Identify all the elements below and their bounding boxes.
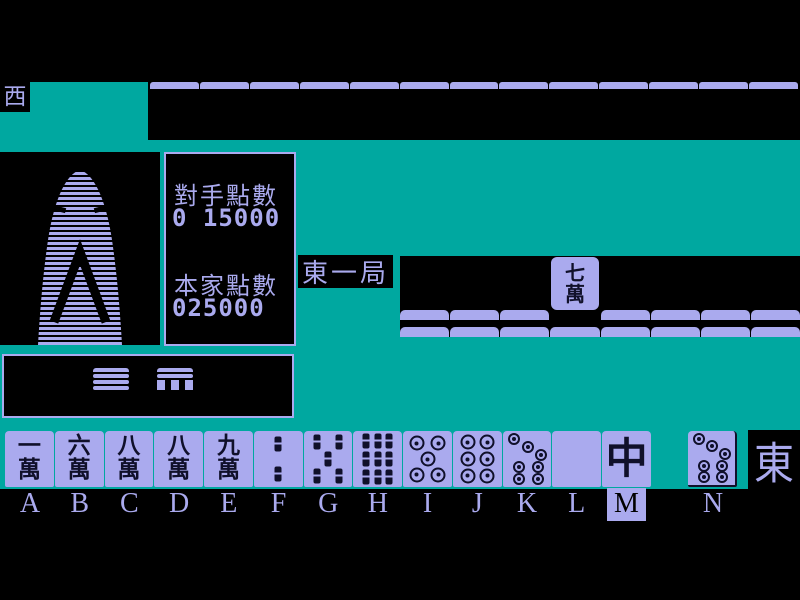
pin-circle (431, 436, 446, 451)
hand-tile-G[interactable] (304, 431, 353, 487)
opponent-hand-row (150, 82, 798, 89)
pin-circle (698, 471, 710, 483)
discard-tile-kanji-top: 七 (565, 263, 585, 284)
tile-kanji-value: 八 (105, 435, 154, 458)
tile-kanji-value: 八 (154, 435, 203, 458)
wall-tile-back (701, 327, 750, 337)
wall-tile-back (400, 310, 449, 320)
bamboo-stick (386, 469, 393, 484)
tile-letter-label: H (362, 490, 394, 518)
player-wind-label: 東 (754, 428, 794, 492)
tile-kanji-honor: 中 (602, 435, 651, 483)
hand-tile-M[interactable]: 中 (602, 431, 651, 487)
pin-circle (431, 467, 446, 482)
opponent-tile-back (599, 82, 648, 89)
pin-circle (716, 471, 728, 483)
tile-kanji-value: 一 (5, 435, 54, 458)
tile-kanji-suit: 萬 (105, 459, 154, 482)
tile-letter-K[interactable]: K (502, 490, 552, 520)
pin-circle (480, 435, 495, 450)
opponent-tile-back (400, 82, 449, 89)
pin-circle (420, 452, 435, 467)
pin-circle (460, 435, 475, 450)
opponent-tile-back (699, 82, 748, 89)
striped-dome-graphic (0, 152, 160, 345)
opponent-tile-back (350, 82, 399, 89)
wall-tile-back (500, 310, 549, 320)
opponent-discard-area: 七 萬 (400, 256, 800, 337)
tile-letter-D[interactable]: D (154, 490, 204, 520)
pin-circle (460, 452, 475, 467)
opponent-tile-back (150, 82, 199, 89)
hand-tile-C[interactable]: 八萬 (105, 431, 154, 487)
wall-tile-back (601, 327, 650, 337)
hand-tile-L[interactable] (552, 431, 601, 487)
tile-letter-label: L (562, 490, 591, 518)
tile-letter-H[interactable]: H (353, 490, 403, 520)
player-wind-indicator: 東 (748, 430, 800, 490)
bamboo-stick (386, 452, 393, 467)
tile-letter-label: G (312, 490, 344, 518)
tile-letter-label: C (114, 490, 145, 518)
wall-tile-back (450, 327, 499, 337)
tile-kanji-value: 九 (204, 435, 253, 458)
hand-tile-F[interactable] (254, 431, 303, 487)
bamboo-stick (363, 434, 370, 449)
opponent-tile-back (450, 82, 499, 89)
tile-letter-label: N (697, 490, 729, 518)
bamboo-stick (363, 452, 370, 467)
wall-tile-back (651, 310, 700, 320)
pin-circle (716, 460, 728, 472)
opponent-score-value: 0 15000 (172, 204, 292, 232)
hand-tile-D[interactable]: 八萬 (154, 431, 203, 487)
pin-circle (513, 473, 525, 485)
bamboo-stick (336, 435, 343, 450)
round-indicator: 東一局 (298, 255, 393, 288)
opponent-hand-area (148, 82, 800, 140)
opponent-tile-back (649, 82, 698, 89)
bamboo-stick (313, 435, 320, 450)
tile-stack-legs-icon (157, 368, 193, 398)
pin-circle (409, 467, 424, 482)
wall-tile-back (400, 327, 449, 337)
round-label: 東一局 (302, 253, 389, 290)
tile-letter-label: E (214, 490, 243, 518)
tile-letter-label: M (607, 488, 646, 521)
pin-circle (719, 448, 731, 460)
wall-stack-panel (2, 354, 294, 418)
opponent-tile-back (300, 82, 349, 89)
bamboo-stick (336, 468, 343, 483)
pin-circle (480, 452, 495, 467)
tile-letter-E[interactable]: E (204, 490, 254, 520)
wall-tile-back (751, 327, 800, 337)
hand-tile-A[interactable]: 一萬 (5, 431, 54, 487)
tile-letter-N[interactable]: N (688, 490, 738, 520)
left-wind-label: 西 (4, 86, 27, 109)
score-panel: 對手點數 0 15000 本家點數 025000 (164, 152, 296, 346)
tile-letter-J[interactable]: J (452, 490, 502, 520)
tower-panel (0, 152, 160, 345)
hand-tile-H[interactable] (353, 431, 402, 487)
opponent-tile-back (549, 82, 598, 89)
tile-letter-label: K (511, 490, 543, 518)
drawn-tile-N[interactable] (688, 431, 737, 487)
pin-circle (522, 441, 534, 453)
pin-circle (508, 433, 520, 445)
opponent-tile-back (749, 82, 798, 89)
discarded-tile-7man: 七 萬 (551, 257, 599, 310)
bamboo-stick (275, 437, 282, 452)
tile-kanji-suit: 萬 (154, 459, 203, 482)
bamboo-stick (374, 452, 381, 467)
hand-tile-K[interactable] (503, 431, 552, 487)
tile-kanji-value: 六 (55, 435, 104, 458)
pin-circle (532, 473, 544, 485)
bamboo-stick (275, 466, 282, 481)
hand-tile-J[interactable] (453, 431, 502, 487)
opponent-tile-back (499, 82, 548, 89)
self-score-value: 025000 (172, 294, 292, 322)
tile-kanji-suit: 萬 (204, 459, 253, 482)
tile-letter-label: J (466, 490, 489, 518)
bamboo-stick (386, 434, 393, 449)
tile-letter-A[interactable]: A (5, 490, 55, 520)
bamboo-stick (374, 434, 381, 449)
tile-letter-label: A (14, 490, 46, 518)
wall-tile-back (601, 310, 650, 320)
opponent-tile-back (200, 82, 249, 89)
wall-row-upper (400, 310, 800, 320)
left-wind-indicator: 西 (0, 82, 30, 112)
tile-letter-label: F (265, 490, 293, 518)
wall-tile-back (751, 310, 800, 320)
wall-tile-back (500, 327, 549, 337)
wall-tile-back (450, 310, 499, 320)
tile-letter-C[interactable]: C (104, 490, 154, 520)
tile-letter-label: D (163, 490, 195, 518)
tile-kanji-suit: 萬 (5, 459, 54, 482)
discard-tile-kanji-bottom: 萬 (565, 284, 585, 305)
tile-letter-label: I (417, 490, 438, 518)
tile-letter-label: B (64, 490, 95, 518)
tile-letter-M[interactable]: M (601, 490, 651, 520)
tile-letter-G[interactable]: G (303, 490, 353, 520)
pin-circle (532, 461, 544, 473)
tile-select-row: ABCDEFGHIJKLMN (0, 489, 800, 600)
bamboo-stick (374, 469, 381, 484)
bamboo-stick (313, 468, 320, 483)
pin-circle (480, 468, 495, 483)
drawn-tile-slot (688, 431, 737, 487)
hand-tile-I[interactable] (403, 431, 452, 487)
pin-circle (513, 461, 525, 473)
wall-row-lower (400, 327, 800, 337)
pin-circle (460, 468, 475, 483)
hand-tile-E[interactable]: 九萬 (204, 431, 253, 487)
tile-letter-L[interactable]: L (552, 490, 602, 520)
opponent-tile-back (250, 82, 299, 89)
player-hand: 一萬六萬八萬八萬九萬中 (5, 431, 651, 487)
tile-stack-icon (93, 368, 129, 398)
wall-tile-back (550, 327, 599, 337)
tile-letter-B[interactable]: B (55, 490, 105, 520)
bamboo-stick (363, 469, 370, 484)
hand-tile-B[interactable]: 六萬 (55, 431, 104, 487)
pin-circle (706, 440, 718, 452)
pin-circle (693, 433, 705, 445)
wall-tile-back (701, 310, 750, 320)
tile-kanji-suit: 萬 (55, 459, 104, 482)
tile-letter-I[interactable]: I (403, 490, 453, 520)
wall-tile-back (651, 327, 700, 337)
tile-letter-F[interactable]: F (254, 490, 304, 520)
pin-circle (535, 449, 547, 461)
pin-circle (698, 460, 710, 472)
pin-circle (409, 436, 424, 451)
mahjong-game-screen: 西 對手點數 0 15000 本家點數 025000 東一局 七 萬 (0, 0, 800, 600)
bamboo-stick (324, 452, 331, 467)
